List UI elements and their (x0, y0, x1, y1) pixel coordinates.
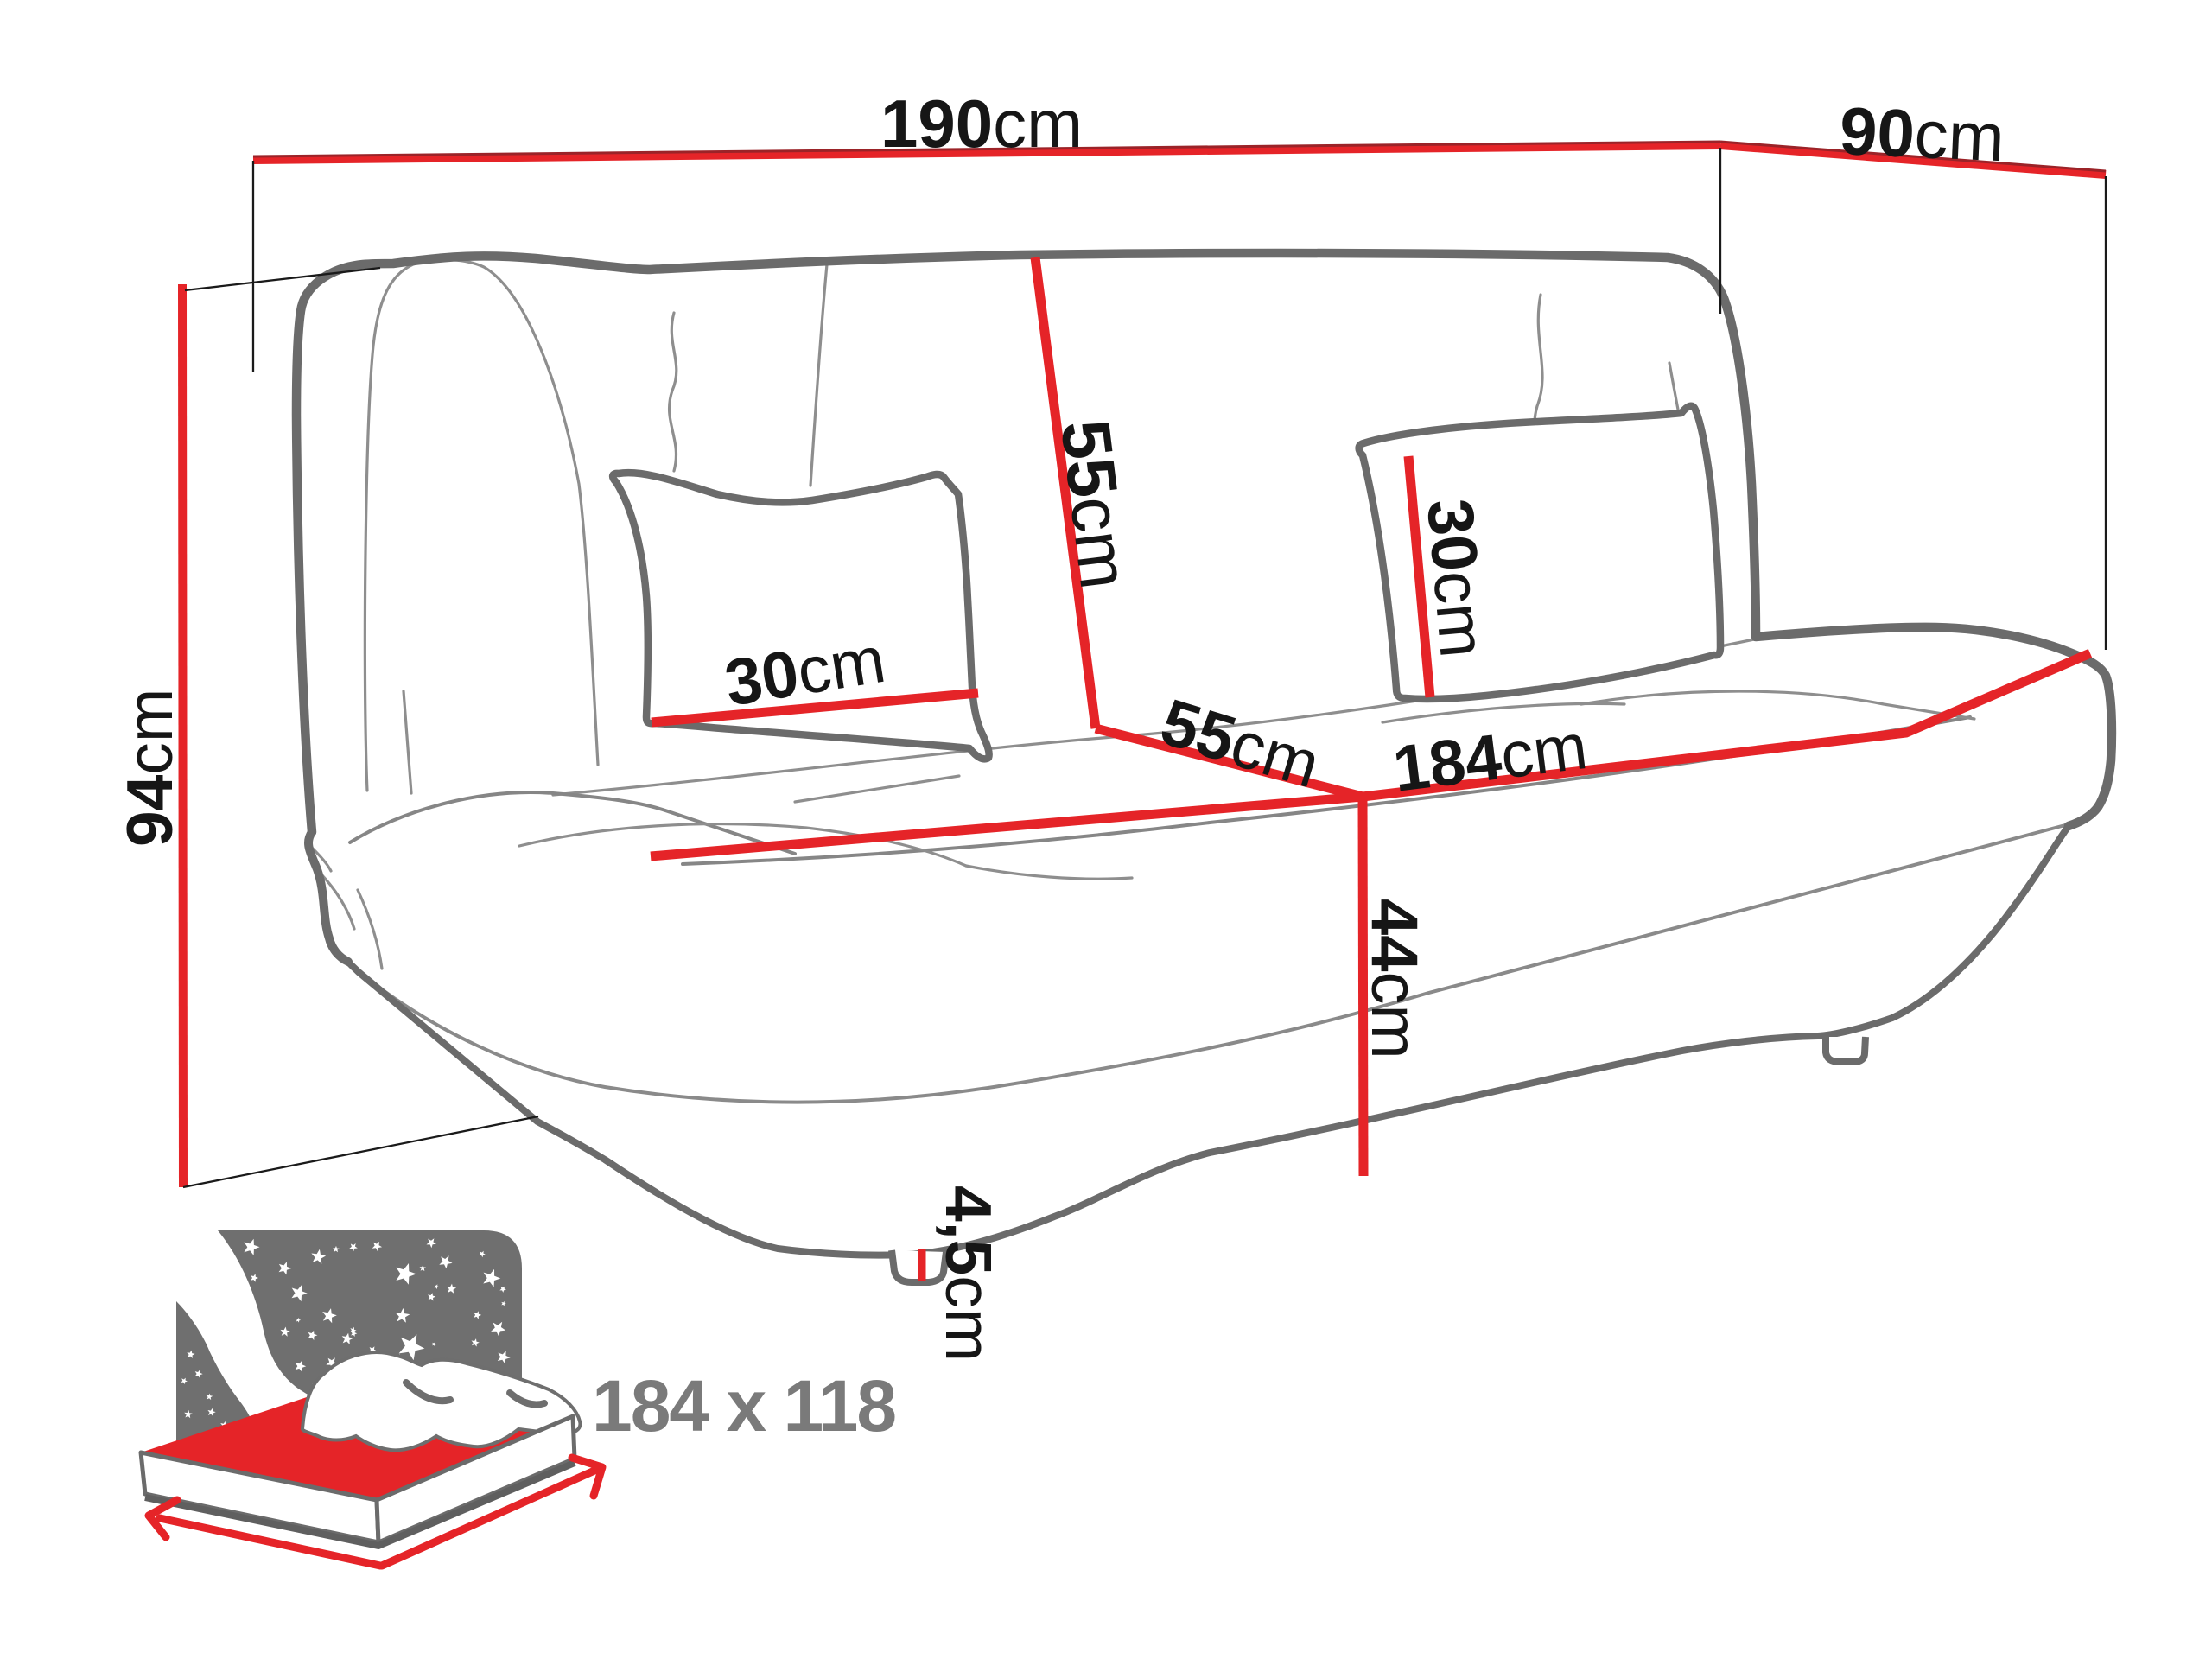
svg-text:90cm: 90cm (1838, 92, 2005, 175)
svg-text:55cm: 55cm (1046, 416, 1143, 593)
svg-text:184 x 118: 184 x 118 (592, 1365, 895, 1446)
svg-text:4,5cm: 4,5cm (932, 1185, 1005, 1362)
svg-text:55cm: 55cm (1153, 685, 1328, 803)
svg-text:44cm: 44cm (1357, 899, 1431, 1059)
svg-text:190cm: 190cm (880, 86, 1083, 162)
svg-text:94cm: 94cm (113, 689, 186, 847)
svg-text:184cm: 184cm (1389, 709, 1592, 805)
svg-text:30cm: 30cm (1414, 496, 1500, 660)
